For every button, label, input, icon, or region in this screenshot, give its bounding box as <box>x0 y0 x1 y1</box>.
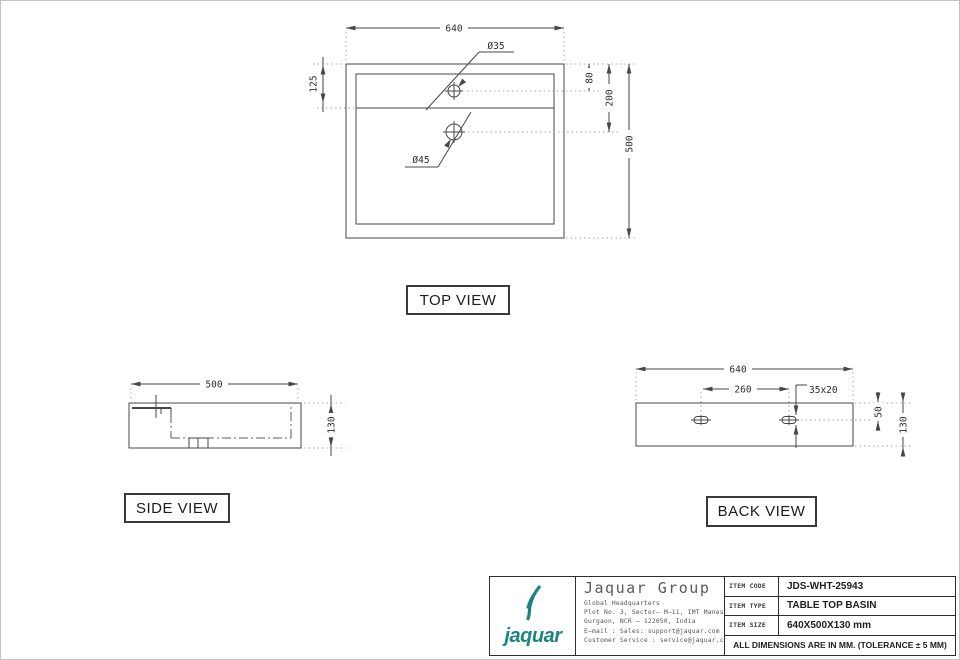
top-dim-height: 500 <box>625 135 636 152</box>
logo-cell: jaquar <box>490 577 576 655</box>
item-type-row: ITEM TYPE TABLE TOP BASIN <box>725 597 955 617</box>
logo-wordmark: jaquar <box>501 625 563 647</box>
item-code-label: ITEM CODE <box>725 577 779 596</box>
title-block: jaquar Jaquar Group Global Headquarters … <box>489 576 956 656</box>
item-type-value: TABLE TOP BASIN <box>779 600 955 611</box>
tolerance-note: ALL DIMENSIONS ARE IN MM. (TOLERANCE ± 5… <box>725 636 955 656</box>
top-dim-hole2-offset: 200 <box>605 89 616 106</box>
top-view-drawing: 640 Ø35 <box>309 22 636 238</box>
company-name: Jaquar Group <box>584 580 718 597</box>
top-dim-rim-offset: 125 <box>309 75 320 92</box>
side-view-caption: SIDE VIEW <box>124 493 230 523</box>
address-line: Gurgaon, NCR – 122050, India <box>584 617 718 626</box>
back-dim-slot-spacing: 260 <box>734 385 751 396</box>
company-address: Global Headquarters Plot No. 3, Sector– … <box>584 599 718 645</box>
item-type-label: ITEM TYPE <box>725 597 779 616</box>
item-size-row: ITEM SIZE 640X500X130 mm <box>725 616 955 636</box>
item-code-row: ITEM CODE JDS-WHT-25943 <box>725 577 955 597</box>
technical-drawing: 640 Ø35 <box>1 1 960 566</box>
top-dim-width: 640 <box>445 24 462 35</box>
jaquar-logo: jaquar <box>494 583 572 649</box>
top-dim-hole1-offset: 80 <box>585 72 596 84</box>
address-line: Plot No. 3, Sector– M–11, IMT Manesar <box>584 608 718 617</box>
back-dim-slot-top-offset: 50 <box>874 406 885 418</box>
back-view-drawing: 640 260 35x20 <box>636 364 913 457</box>
back-dim-height: 130 <box>899 416 910 433</box>
side-dim-depth: 500 <box>205 380 222 391</box>
back-view-caption: BACK VIEW <box>706 496 817 527</box>
item-table: ITEM CODE JDS-WHT-25943 ITEM TYPE TABLE … <box>725 577 955 655</box>
top-hole2-dia-label: Ø45 <box>412 155 429 166</box>
top-hole1-dia-label: Ø35 <box>487 41 504 52</box>
address-line: Customer Service : service@jaquar.com <box>584 636 718 645</box>
company-cell: Jaquar Group Global Headquarters Plot No… <box>576 577 725 655</box>
address-line: E–mail : Sales: support@jaquar.com <box>584 627 718 636</box>
item-code-value: JDS-WHT-25943 <box>779 581 955 592</box>
item-size-value: 640X500X130 mm <box>779 620 955 631</box>
item-size-label: ITEM SIZE <box>725 616 779 635</box>
address-line: Global Headquarters <box>584 599 718 608</box>
drawing-sheet: 640 Ø35 <box>0 0 960 660</box>
top-view-caption: TOP VIEW <box>406 285 510 315</box>
side-view-drawing: 500 130 <box>129 379 345 457</box>
back-dim-width: 640 <box>729 365 746 376</box>
back-slot-size-label: 35x20 <box>809 385 838 396</box>
side-dim-height: 130 <box>327 416 338 433</box>
